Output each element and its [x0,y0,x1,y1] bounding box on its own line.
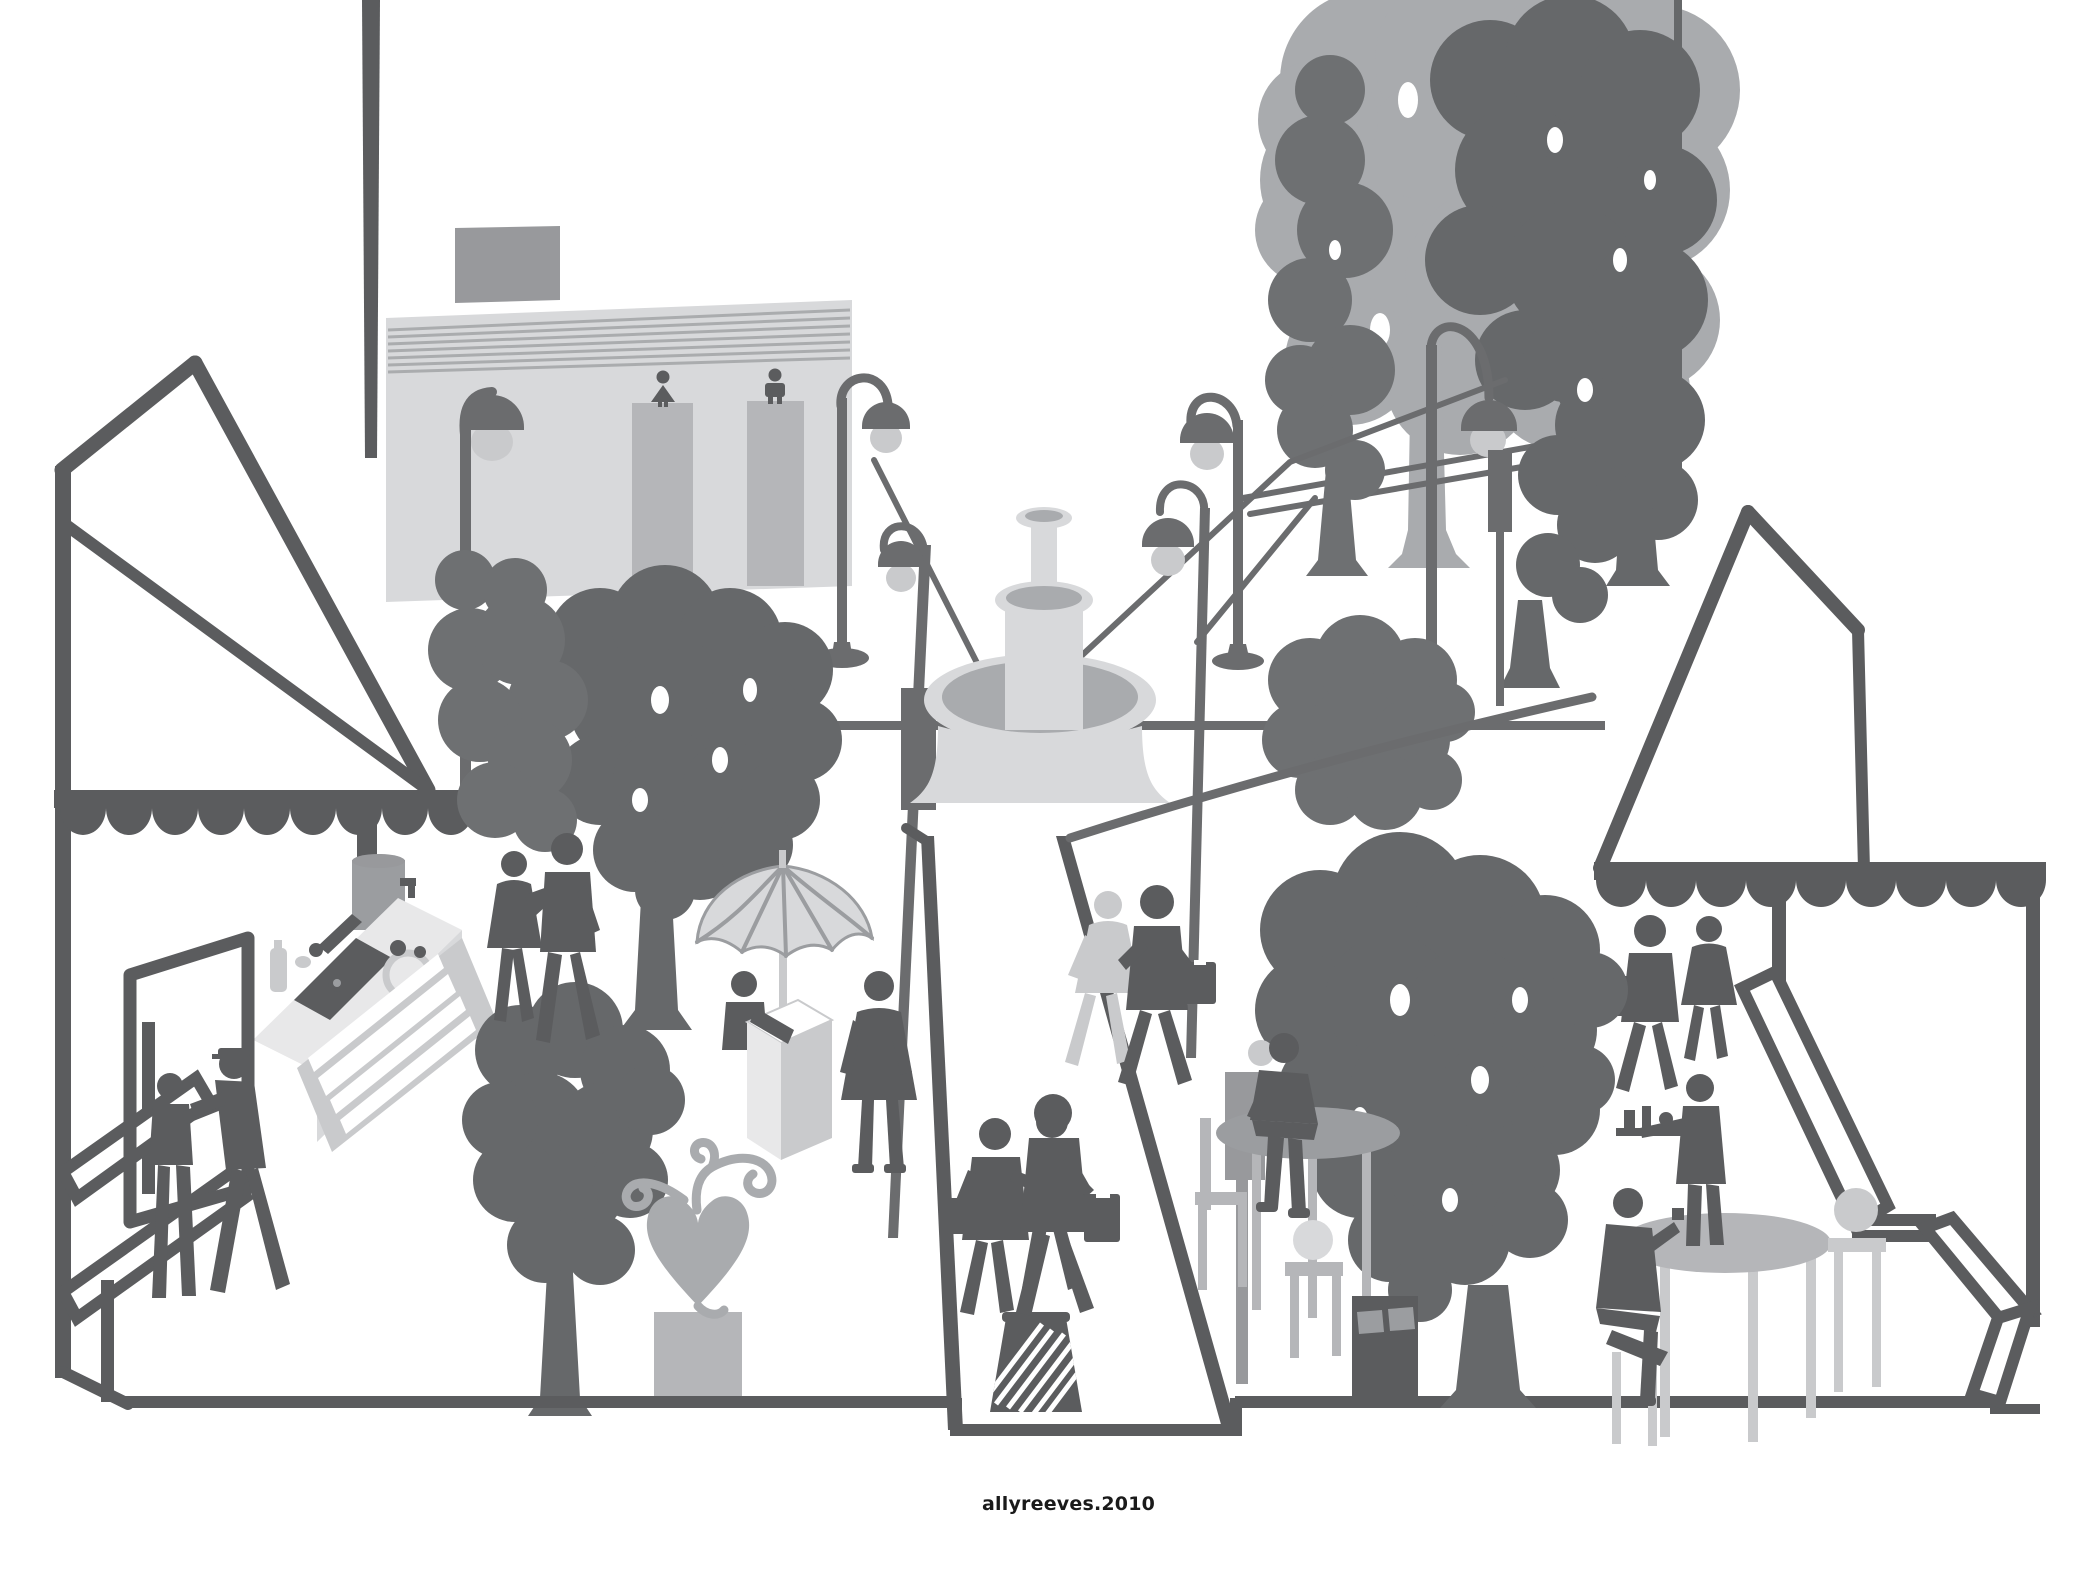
walking-couple-right [1610,915,1737,1092]
grove-cut-edge [1674,0,1682,478]
tent-awning-right [1594,862,2046,907]
sculpture-pedestal [654,1312,742,1404]
flag-pole-left [362,0,380,458]
serving-tray [1616,1128,1686,1136]
roof-vent [455,226,560,303]
ground-line-left [125,1396,957,1408]
restroom-door-men [747,401,804,586]
walking-couple-left [487,833,600,1043]
umbrella-cart [697,850,872,1160]
tent-pole-left [55,466,71,1378]
path-couple [950,1094,1120,1316]
restroom-building [386,226,852,602]
plaza-illustration: allyreeves.2010 [0,0,2100,1594]
coffee-bar [253,800,497,1185]
bush-mid-right [1262,615,1475,830]
artist-signature: allyreeves.2010 [982,1493,1155,1515]
stairs-right [1742,972,2032,1402]
street-lamp-6 [1180,397,1264,670]
ground-line-path [950,1424,1242,1436]
recycling-bin [1352,1296,1418,1400]
man-with-briefcase [1118,885,1216,1086]
restroom-door-women [632,403,693,586]
trash-can-path [986,1312,1098,1418]
tent-awning-left [54,790,474,835]
heart-sculpture [626,1143,772,1404]
tree-grove-dark [1265,0,1717,688]
street-lamp-4 [878,526,931,1238]
tree-center-left [548,565,842,1030]
syrup-bottle [270,948,287,992]
signpost-right [1488,450,1512,706]
fountain [910,507,1170,803]
